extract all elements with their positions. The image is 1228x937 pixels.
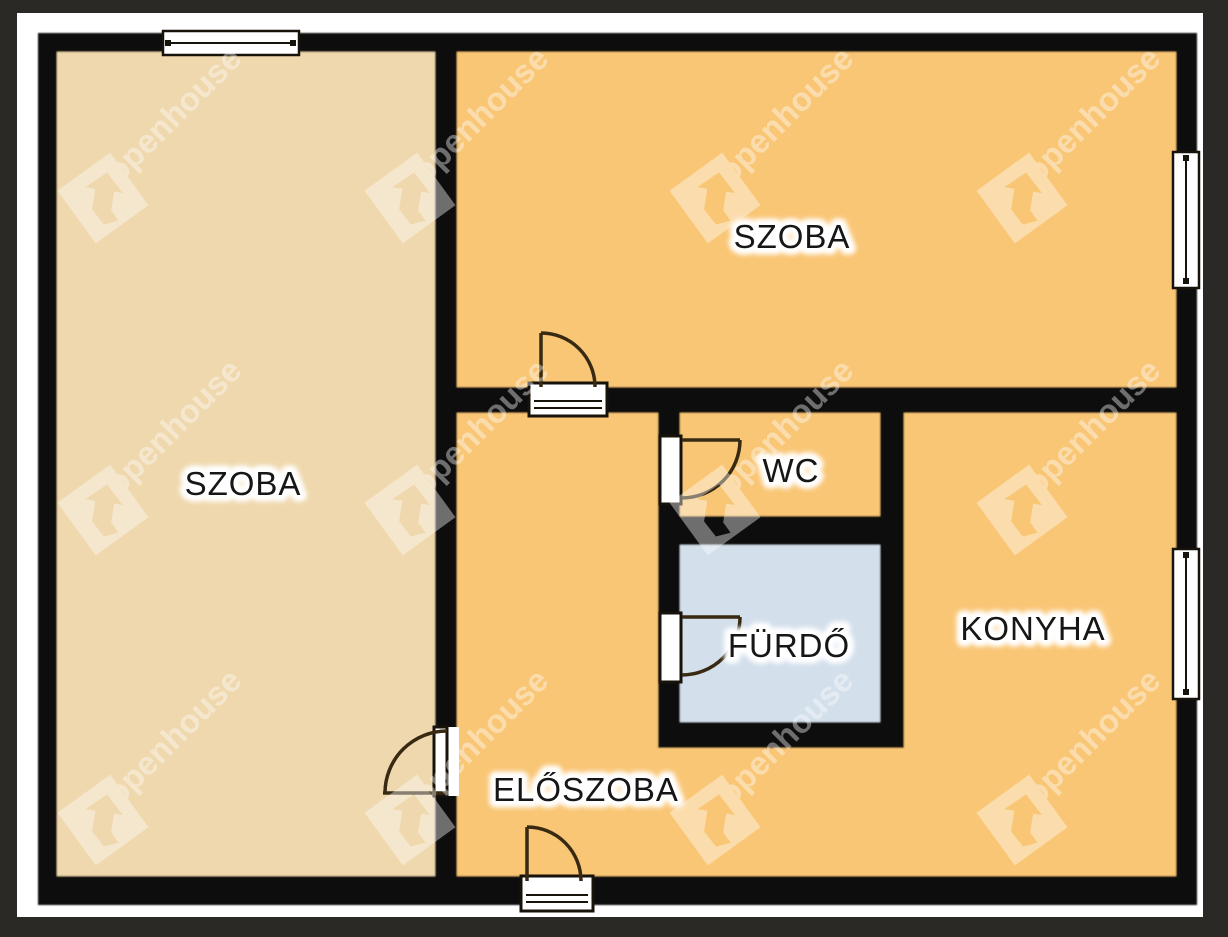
window-konyha-right xyxy=(1173,549,1199,699)
room-label-szoba-top: SZOBA xyxy=(734,218,851,255)
floor-plan-canvas: openhouse xyxy=(0,0,1228,937)
room-label-szoba-left: SZOBA xyxy=(185,465,302,502)
room-label-furdo: FÜRDŐ xyxy=(728,627,850,664)
floor-plan-screenshot: openhouse xyxy=(0,0,1228,937)
room-label-wc: WC xyxy=(763,452,820,489)
room-label-eloszoba: ELŐSZOBA xyxy=(493,771,679,808)
room-label-konyha: KONYHA xyxy=(960,610,1105,647)
window-szoba-right xyxy=(1173,152,1199,288)
